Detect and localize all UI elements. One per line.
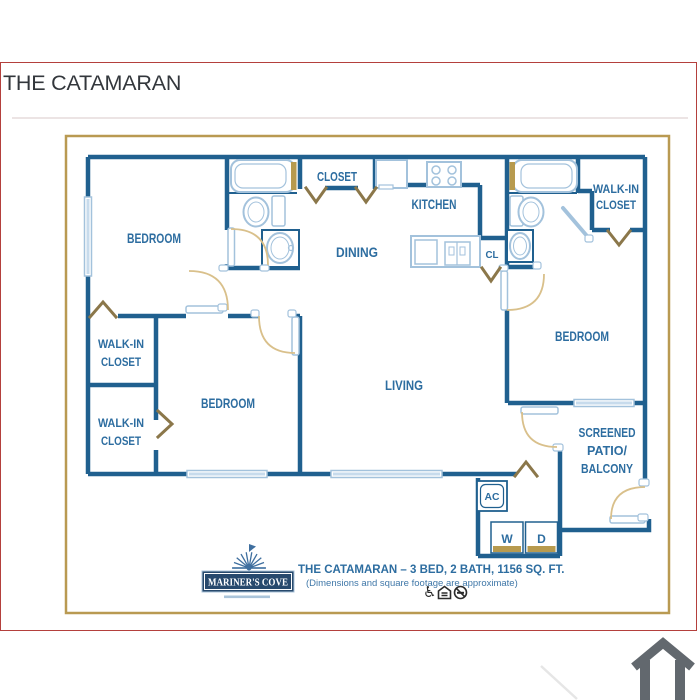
bathtub-icon (231, 160, 297, 192)
logo-subline (224, 596, 270, 599)
window (87, 199, 90, 274)
room-label-walkin-tr-1: WALK-IN (593, 182, 639, 196)
room-label-walkin-u-1: WALK-IN (98, 337, 144, 351)
room-label-closet: CLOSET (317, 169, 357, 184)
walls (88, 157, 649, 556)
toilet-icon (510, 196, 544, 227)
plan-specs: – 3 BED, 2 BATH, 1156 SQ. FT. (397, 564, 564, 576)
room-label-kitchen: KITCHEN (412, 197, 457, 212)
sink-icon (507, 230, 533, 262)
decorative-line (541, 666, 577, 699)
room-label-bedroom-b: BEDROOM (201, 395, 255, 411)
ship-wheel-icon (232, 544, 266, 571)
footer-icons: ♿ (423, 585, 468, 600)
walkin-door-chevron (158, 411, 172, 437)
ac-unit: AC (477, 481, 507, 511)
door-leaf (521, 407, 558, 414)
plan-name: THE CATAMARAN (298, 564, 397, 576)
stove-icon (427, 162, 461, 187)
walkin-door-chevron (90, 302, 116, 317)
washer-box: W (491, 522, 523, 553)
counter-sink-icon (411, 236, 480, 267)
room-label-bedroom-tl: BEDROOM (127, 230, 181, 246)
home-icon[interactable] (634, 643, 692, 700)
dryer-box: D (526, 522, 558, 553)
room-label-walkin-d-1: WALK-IN (98, 416, 144, 430)
logo-text: MARINER'S COVE (208, 578, 288, 589)
room-label-cl: CL (486, 249, 500, 261)
plan-disclaimer: (Dimensions and square footage are appro… (306, 578, 518, 589)
room-label-walkin-tr-2: CLOSET (596, 198, 637, 212)
bathtub-icon (510, 160, 578, 192)
closet-door-chevron (306, 188, 326, 202)
floorplan-page: THE CATAMARAN (0, 0, 700, 700)
no-smoking-icon (453, 585, 468, 600)
refrigerator-icon (376, 160, 407, 189)
cl-door-chevron (482, 268, 500, 281)
room-label-bedroom-r: BEDROOM (555, 329, 609, 344)
room-labels: BEDROOM CLOSET KITCHEN DINING CL WALK-IN… (98, 169, 639, 476)
plan-summary: THE CATAMARAN – 3 BED, 2 BATH, 1156 SQ. … (298, 564, 564, 576)
mariners-cove-logo: MARINER'S COVE (202, 544, 294, 598)
room-label-ac: AC (485, 492, 500, 503)
room-label-walkin-u-2: CLOSET (101, 355, 142, 369)
room-label-washer: W (501, 532, 513, 546)
kitchen-fixtures (376, 160, 480, 267)
door-leaf (292, 317, 299, 355)
equal-housing-icon (437, 585, 452, 600)
room-label-dryer: D (537, 532, 546, 546)
wheelchair-icon: ♿ (423, 585, 436, 600)
entry-door-chevron (515, 462, 537, 476)
room-label-dining: DINING (336, 245, 378, 260)
window (576, 402, 632, 405)
room-label-patio-3: BALCONY (581, 462, 634, 476)
closet-door-chevron (356, 188, 376, 202)
floorplan-svg: AC W D BEDROOM CLOSET KITCHEN DINING CL … (0, 0, 700, 700)
room-label-living: LIVING (385, 378, 423, 393)
window (333, 473, 440, 476)
bathroom-1 (231, 160, 299, 267)
door-leaf (228, 228, 235, 266)
room-label-walkin-d-2: CLOSET (101, 434, 142, 448)
toilet-icon (244, 196, 286, 227)
room-label-patio-1: SCREENED (579, 426, 636, 440)
window (189, 473, 265, 476)
walkin-door-chevron (608, 231, 630, 245)
room-label-patio-2: PATIO/ (587, 444, 628, 458)
door-leaf (563, 208, 587, 236)
door-leaf (501, 271, 508, 310)
